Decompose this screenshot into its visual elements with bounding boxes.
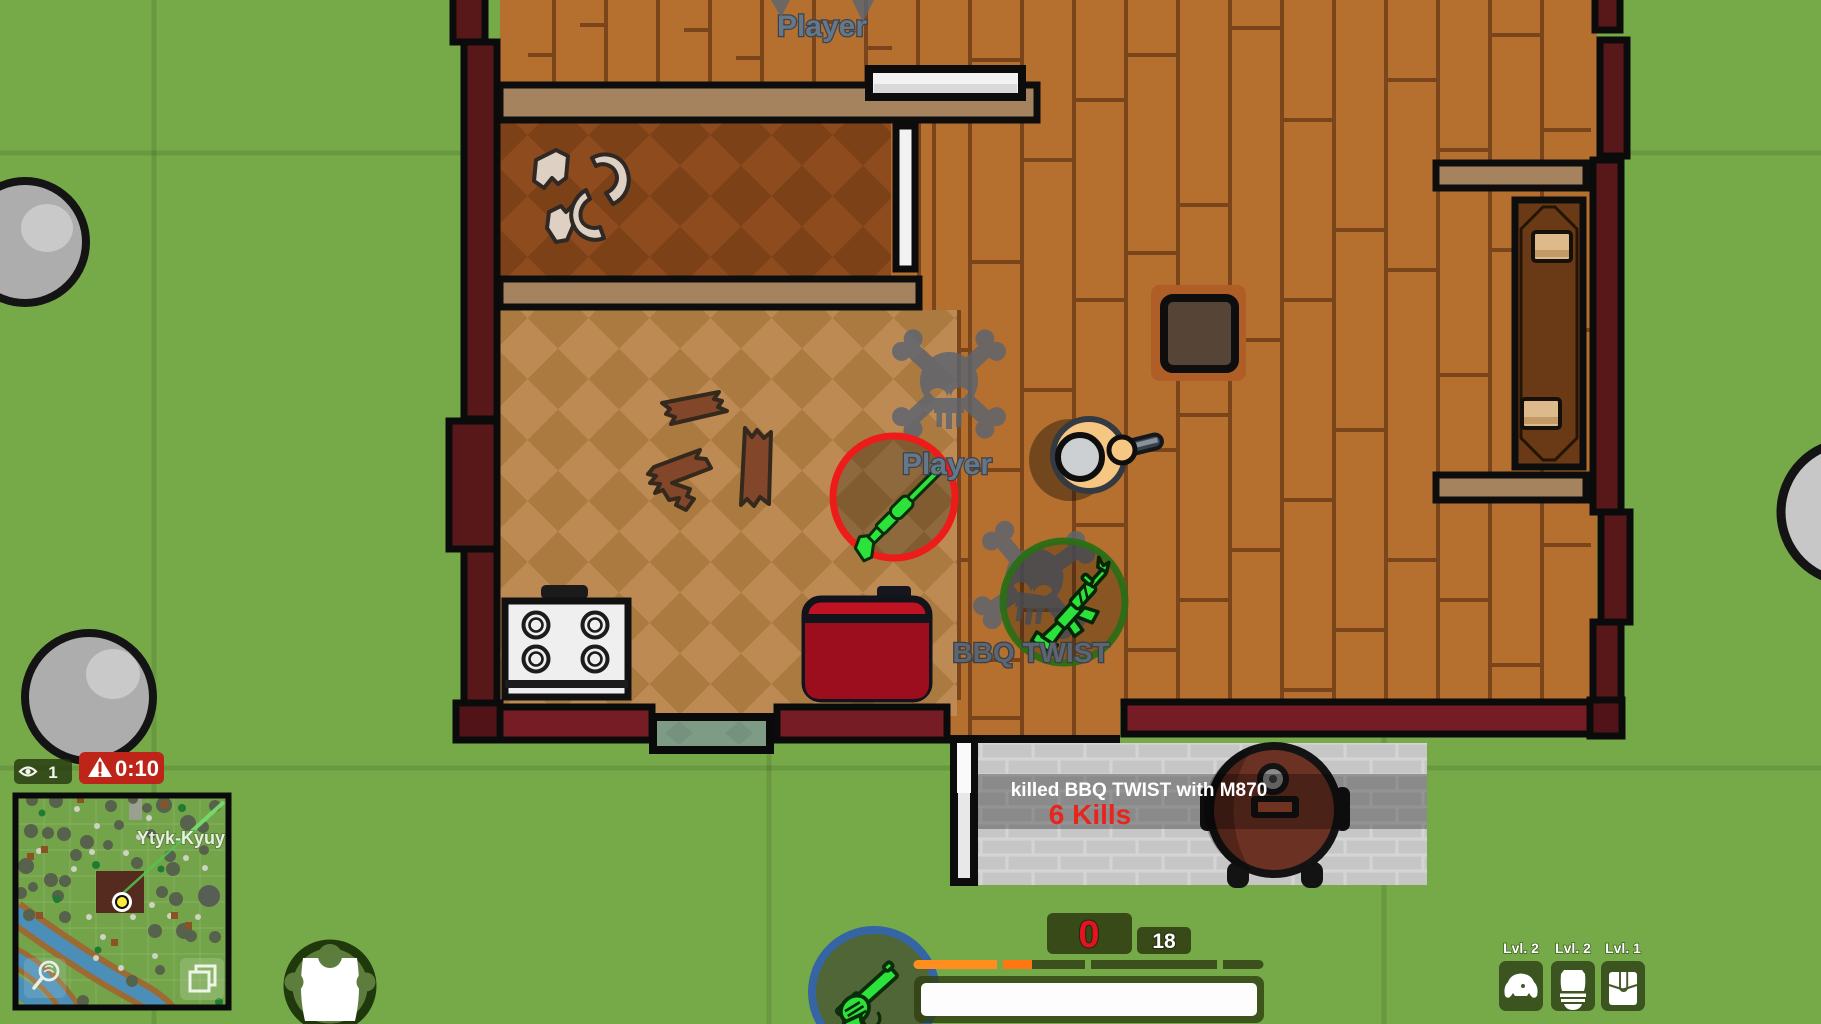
svg-text:0: 0 [1078, 914, 1099, 956]
svg-text:Player: Player [902, 448, 992, 481]
svg-text:18: 18 [1152, 930, 1176, 953]
svg-text:Ytyk-Kyuy: Ytyk-Kyuy [137, 828, 225, 848]
svg-text:6 Kills: 6 Kills [1049, 799, 1131, 830]
svg-text:1: 1 [48, 763, 57, 782]
svg-text:Lvl. 2: Lvl. 2 [1555, 940, 1591, 956]
svg-text:Lvl. 1: Lvl. 1 [1605, 940, 1641, 956]
svg-text:BBQ TWIST: BBQ TWIST [952, 637, 1109, 668]
svg-text:0:10: 0:10 [115, 756, 159, 781]
svg-text:Lvl. 2: Lvl. 2 [1503, 940, 1539, 956]
svg-text:killed BBQ TWIST with M870: killed BBQ TWIST with M870 [1011, 780, 1268, 801]
svg-text:Player: Player [777, 10, 867, 43]
